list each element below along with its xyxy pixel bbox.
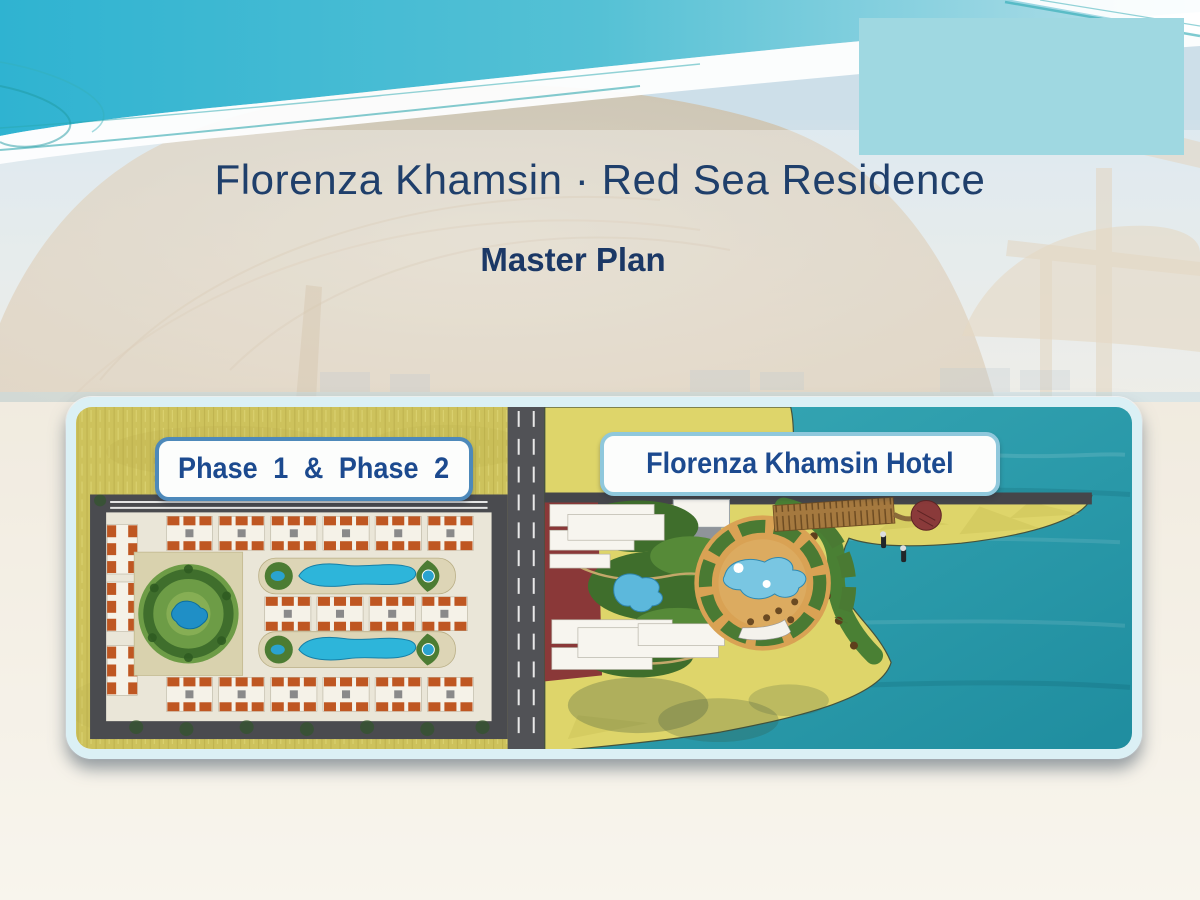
phase-label-text: Phase 1 & Phase 2 — [178, 452, 449, 486]
phase-compound — [90, 494, 508, 739]
access-road — [508, 407, 545, 749]
page-subtitle: Master Plan — [0, 241, 1146, 279]
phase-label: Phase 1 & Phase 2 — [155, 437, 473, 501]
master-plan-image: Phase 1 & Phase 2 Florenza Khamsin Hotel — [66, 397, 1142, 759]
pier-roundel — [911, 500, 941, 530]
garden-circle — [134, 552, 242, 675]
logo-placeholder — [859, 18, 1184, 155]
hotel-label-text: Florenza Khamsin Hotel — [646, 447, 954, 481]
slide: Florenza Khamsin · Red Sea Residence Mas… — [0, 0, 1200, 900]
page-title: Florenza Khamsin · Red Sea Residence — [0, 156, 1200, 204]
hotel-label: Florenza Khamsin Hotel — [600, 432, 1000, 496]
